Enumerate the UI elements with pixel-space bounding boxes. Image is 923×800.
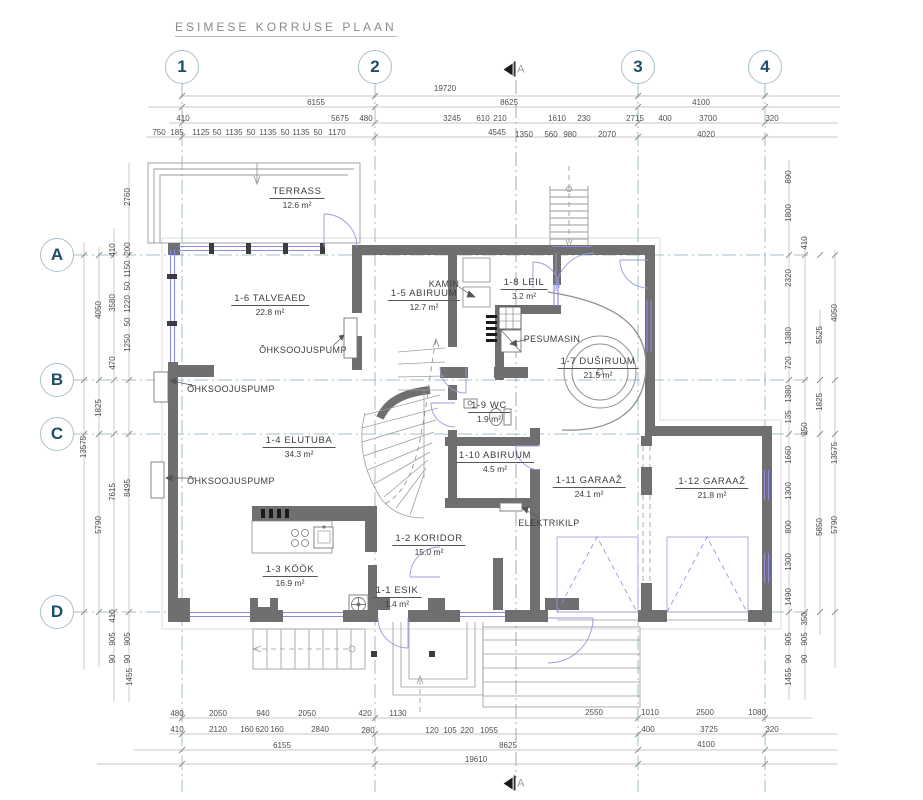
dim-label: 610 <box>476 115 489 123</box>
room-area: 21.8 m² <box>675 489 748 500</box>
room-label: 1-9 WC1.9 m² <box>468 400 510 424</box>
floor-plan-sheet: ESIMESE KORRUSE PLAAN 1234ABCD1972061558… <box>0 0 923 800</box>
dim-label: 320 <box>765 115 778 123</box>
dim-label: 410 <box>170 726 183 734</box>
dim-label: 1125 <box>192 129 209 137</box>
washing-machine <box>501 330 521 352</box>
room-label: 1-5 ABIRUUM12.7 m² <box>388 288 460 312</box>
dim-label: 19610 <box>465 756 487 764</box>
dim-label: 1135 <box>259 129 276 137</box>
room-area: 34.3 m² <box>263 448 336 459</box>
annotation-label: KAMIN <box>429 279 460 289</box>
dim-label: 2840 <box>311 726 329 734</box>
dim-label: 1825 <box>816 393 824 411</box>
dim-label: 800 <box>785 520 793 533</box>
dim-label: 1250 <box>124 334 132 352</box>
dim-label: 2050 <box>298 710 316 718</box>
section-label: A <box>517 63 524 75</box>
dim-label: 3700 <box>699 115 717 123</box>
dim-label: 410 <box>801 236 809 249</box>
section-marker: A <box>504 62 525 77</box>
dim-label: 13575 <box>80 436 88 458</box>
dim-label: 160 <box>270 726 283 734</box>
annotation-label: PESUMASIN <box>524 334 581 344</box>
dim-label: 1490 <box>785 588 793 606</box>
dim-label: 6155 <box>307 99 325 107</box>
dim-label: 5790 <box>831 516 839 534</box>
dim-label: 120 <box>425 727 438 735</box>
page-title: ESIMESE KORRUSE PLAAN <box>175 20 397 37</box>
room-area: 12.7 m² <box>388 301 460 312</box>
dim-label: 1350 <box>515 131 533 139</box>
dim-label: 50 <box>247 129 256 137</box>
dim-label: 410 <box>176 115 189 123</box>
dim-label: 185 <box>170 129 183 137</box>
grid-bubble-D: D <box>40 595 74 629</box>
dim-label: 1130 <box>389 710 406 718</box>
exterior-stair-top <box>550 166 588 253</box>
room-label: 1-1 ESIK1.4 m² <box>373 585 422 609</box>
dim-label: 1825 <box>95 399 103 417</box>
dim-label: 90 <box>801 655 809 664</box>
dim-label: 720 <box>785 356 793 369</box>
room-name: 1-9 WC <box>468 400 510 413</box>
room-area: 1.4 m² <box>373 598 422 609</box>
dim-label: 280 <box>361 727 374 735</box>
dim-label: 320 <box>765 726 778 734</box>
room-name: 1-12 GARAAŽ <box>675 476 748 489</box>
room-name: 1-4 ELUTUBA <box>263 435 336 448</box>
room-area: 22.8 m² <box>231 306 309 317</box>
dim-label: 1080 <box>748 709 766 717</box>
dim-label: 420 <box>358 710 371 718</box>
dim-label: 1800 <box>785 204 793 222</box>
dim-label: 1300 <box>785 482 793 500</box>
grid-bubble-4: 4 <box>748 50 782 84</box>
dim-label: 7615 <box>109 483 117 501</box>
annotation-label: ÕHKSOOJUSPUMP <box>187 476 275 486</box>
dim-label: 750 <box>152 129 165 137</box>
grid-bubble-A: A <box>40 238 74 272</box>
dim-label: 8625 <box>499 742 517 750</box>
grid-bubble-B: B <box>40 363 74 397</box>
room-name: 1-6 TALVEAED <box>231 293 309 306</box>
room-label: 1-11 GARAAŽ24.1 m² <box>553 475 626 499</box>
room-label: 1-10 ABIRUUM4.5 m² <box>456 450 534 474</box>
dim-label: 1135 <box>292 129 309 137</box>
dim-label: 480 <box>359 115 372 123</box>
room-area: 16.9 m² <box>263 577 318 588</box>
dim-label: 1220 <box>124 295 132 313</box>
dim-label: 890 <box>785 170 793 183</box>
dim-label: 1010 <box>641 709 659 717</box>
section-bar <box>514 776 516 791</box>
annotation-label: ÕHKSOOJUSPUMP <box>187 384 275 394</box>
room-area: 12.6 m² <box>269 199 324 210</box>
dim-label: 2320 <box>785 269 793 287</box>
room-name: 1-5 ABIRUUM <box>388 288 460 301</box>
room-label: 1-7 DUŠIRUUM21.5 m² <box>558 356 639 380</box>
dim-label: 6155 <box>273 742 291 750</box>
dim-label: 410 <box>109 243 117 256</box>
dim-label: 905 <box>785 632 793 645</box>
dim-label: 1380 <box>785 385 793 403</box>
dim-label: 1380 <box>785 327 793 345</box>
section-arrow-icon <box>504 63 513 75</box>
dim-label: 90 <box>124 655 132 664</box>
dim-label: 2120 <box>209 726 227 734</box>
dim-label: 4020 <box>697 131 715 139</box>
dim-label: 350 <box>801 422 809 435</box>
dim-label: 1055 <box>480 727 498 735</box>
dim-label: 1455 <box>126 668 134 686</box>
dim-label: 905 <box>124 632 132 645</box>
room-area: 3.2 m² <box>501 290 548 301</box>
room-name: 1-11 GARAAŽ <box>553 475 626 488</box>
dim-label: 1300 <box>785 553 793 571</box>
grid-bubble-1: 1 <box>165 50 199 84</box>
dim-label: 620 <box>255 726 268 734</box>
terrace-outline <box>148 163 360 243</box>
dim-label: 2715 <box>626 115 644 123</box>
dim-label: 4050 <box>831 304 839 322</box>
room-label: 1-6 TALVEAED22.8 m² <box>231 293 309 317</box>
dim-label: 160 <box>240 726 253 734</box>
room-label: 1-4 ELUTUBA34.3 m² <box>263 435 336 459</box>
dim-label: 90 <box>785 655 793 664</box>
dim-label: 470 <box>109 356 117 369</box>
dim-label: 5790 <box>95 516 103 534</box>
dim-label: 4545 <box>488 129 506 137</box>
dim-label: 50 <box>281 129 290 137</box>
terrace-steps <box>253 629 365 669</box>
room-area: 24.1 m² <box>553 488 626 499</box>
room-label: 1-3 KÖÖK16.9 m² <box>263 564 318 588</box>
dim-label: 2550 <box>585 709 603 717</box>
dim-label: 200 <box>124 242 132 255</box>
dim-label: 1135 <box>225 129 242 137</box>
dim-label: 1150 <box>124 260 132 277</box>
room-label: 1-8 LEIL3.2 m² <box>501 277 548 301</box>
room-name: 1-10 ABIRUUM <box>456 450 534 463</box>
room-area: 4.5 m² <box>456 463 534 474</box>
dim-label: 2500 <box>696 709 714 717</box>
dim-label: 13575 <box>831 442 839 464</box>
dim-label: 4100 <box>692 99 710 107</box>
section-bar <box>514 62 516 77</box>
entrance-porch <box>371 622 640 712</box>
garage-divider-dashed <box>643 446 650 583</box>
dim-label: 400 <box>658 115 671 123</box>
dim-label: 905 <box>801 632 809 645</box>
dim-label: 1170 <box>328 129 345 137</box>
grid-bubble-C: C <box>40 417 74 451</box>
dim-label: 1610 <box>548 115 566 123</box>
annotation-label: ELEKTRIKILP <box>518 518 579 528</box>
dim-label: 8495 <box>124 479 132 497</box>
dim-label: 480 <box>170 710 183 718</box>
dim-label: 940 <box>256 710 269 718</box>
garage-door-symbols <box>557 537 748 612</box>
room-name: TERRASS <box>269 186 324 199</box>
dim-label: 350 <box>801 612 809 625</box>
room-name: 1-3 KÖÖK <box>263 564 318 577</box>
dim-label: 3245 <box>443 115 461 123</box>
dim-label: 5850 <box>816 518 824 536</box>
dim-label: 90 <box>109 655 117 664</box>
room-name: 1-1 ESIK <box>373 585 422 598</box>
dim-label: 8625 <box>500 99 518 107</box>
central-stair <box>362 339 445 518</box>
grid-bubble-3: 3 <box>621 50 655 84</box>
dim-label: 135 <box>785 410 793 423</box>
dim-label: 2050 <box>209 710 227 718</box>
room-name: 1-2 KORIDOR <box>392 533 465 546</box>
dim-label: 50 <box>124 282 132 291</box>
dim-label: 105 <box>443 727 456 735</box>
section-arrow-icon <box>504 777 513 789</box>
room-label: 1-12 GARAAŽ21.8 m² <box>675 476 748 500</box>
dim-label: 980 <box>563 131 576 139</box>
dim-label: 2760 <box>124 188 132 206</box>
dim-label: 50 <box>124 318 132 327</box>
room-name: 1-7 DUŠIRUUM <box>558 356 639 369</box>
room-name: 1-8 LEIL <box>501 277 548 290</box>
dim-label: 1455 <box>785 668 793 686</box>
dim-label: 50 <box>213 129 222 137</box>
dim-label: 4050 <box>95 301 103 319</box>
dim-label: 2070 <box>598 131 616 139</box>
room-label: 1-2 KORIDOR15.0 m² <box>392 533 465 557</box>
grid-bubble-2: 2 <box>358 50 392 84</box>
annotation-label: ÕHKSOOJUSPUMP <box>259 345 347 355</box>
dim-label: 230 <box>577 115 590 123</box>
section-label: A <box>517 777 524 789</box>
dim-label: 410 <box>109 609 117 622</box>
dim-label: 5525 <box>816 326 824 344</box>
dim-label: 400 <box>641 726 654 734</box>
dim-label: 905 <box>109 632 117 645</box>
dim-label: 1660 <box>785 446 793 464</box>
dim-label: 4100 <box>697 741 715 749</box>
dim-label: 50 <box>314 129 323 137</box>
dim-label: 5675 <box>331 115 349 123</box>
dim-label: 220 <box>460 727 473 735</box>
dim-label: 210 <box>493 115 506 123</box>
room-area: 1.9 m² <box>468 413 510 424</box>
dim-label: 3580 <box>109 294 117 312</box>
dim-label: 3725 <box>700 726 718 734</box>
room-label: TERRASS12.6 m² <box>269 186 324 210</box>
room-area: 15.0 m² <box>392 546 465 557</box>
room-area: 21.5 m² <box>558 369 639 380</box>
dim-label: 560 <box>544 131 557 139</box>
dim-label: 19720 <box>434 85 456 93</box>
electric-panel <box>500 503 522 511</box>
section-marker: A <box>504 776 525 791</box>
